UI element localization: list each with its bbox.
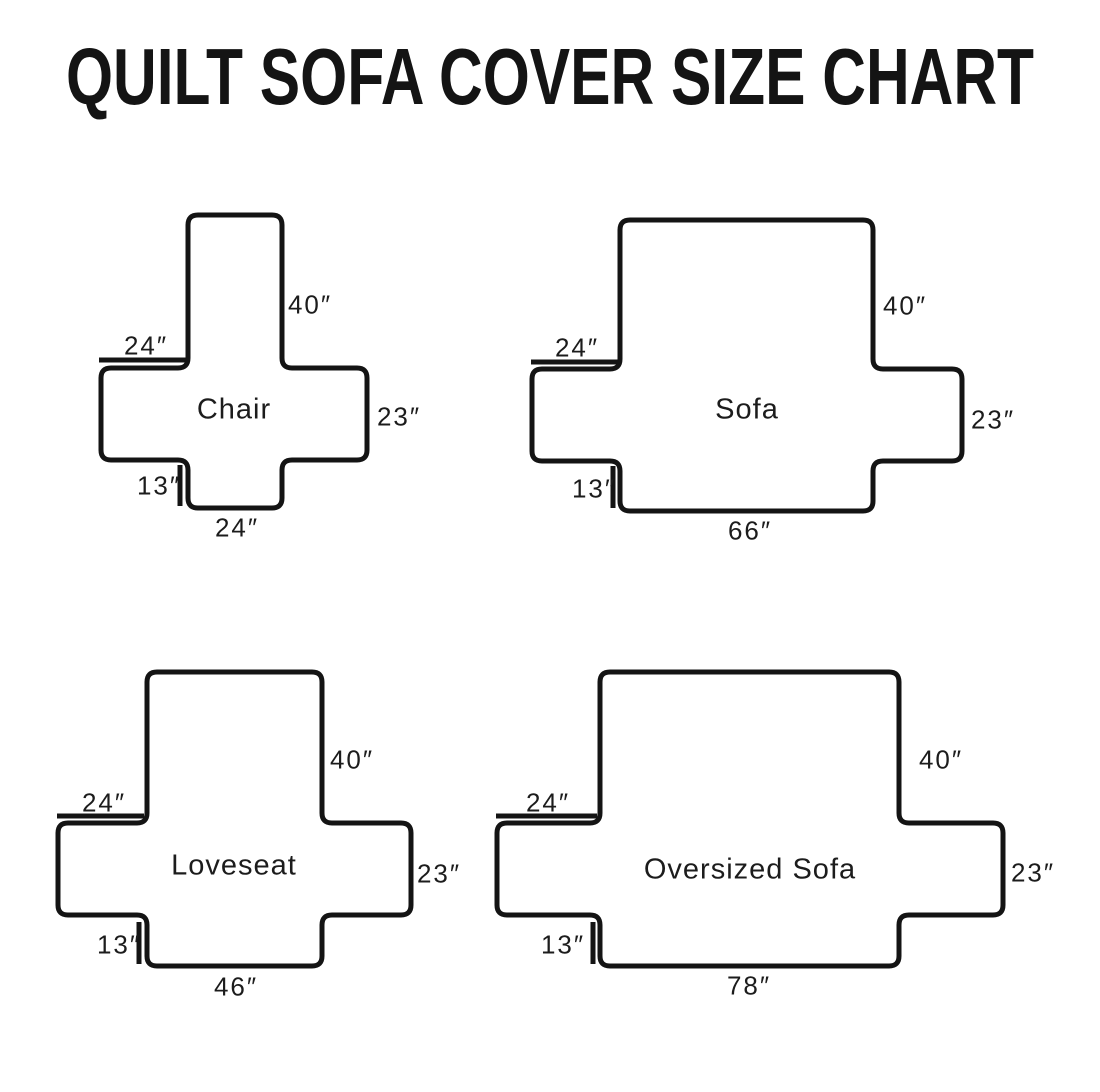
chair-front-skirt-label: 13″ (137, 471, 181, 502)
loveseat-back-height-label: 40″ (330, 745, 374, 776)
loveseat-seat-width-label: 46″ (214, 972, 258, 1003)
loveseat-front-skirt-label: 13″ (97, 930, 141, 961)
sofa-side-drop-label: 23″ (971, 405, 1015, 436)
label-layer: 40″ 24″ Chair 23″ 13″ 24″ 40″ 24″ Sofa 2… (0, 0, 1100, 1092)
oversized-sofa-seat-width-label: 78″ (727, 971, 771, 1002)
chair-side-drop-label: 23″ (377, 402, 421, 433)
sofa-front-skirt-label: 13″ (572, 474, 616, 505)
sofa-name-label: Sofa (715, 394, 779, 427)
loveseat-arm-width-label: 24″ (82, 788, 126, 819)
oversized-sofa-back-height-label: 40″ (919, 745, 963, 776)
oversized-sofa-front-skirt-label: 13″ (541, 930, 585, 961)
size-chart-page: QUILT SOFA COVER SIZE CHART 40″ 24″ (0, 0, 1100, 1092)
sofa-seat-width-label: 66″ (728, 516, 772, 547)
sofa-back-height-label: 40″ (883, 291, 927, 322)
sofa-arm-width-label: 24″ (555, 333, 599, 364)
oversized-sofa-arm-width-label: 24″ (526, 788, 570, 819)
loveseat-side-drop-label: 23″ (417, 859, 461, 890)
chair-arm-width-label: 24″ (124, 331, 168, 362)
chair-seat-width-label: 24″ (215, 513, 259, 544)
chair-back-height-label: 40″ (288, 290, 332, 321)
oversized-sofa-side-drop-label: 23″ (1011, 858, 1055, 889)
loveseat-name-label: Loveseat (171, 850, 297, 883)
oversized-sofa-name-label: Oversized Sofa (644, 854, 856, 887)
chair-name-label: Chair (197, 394, 271, 427)
